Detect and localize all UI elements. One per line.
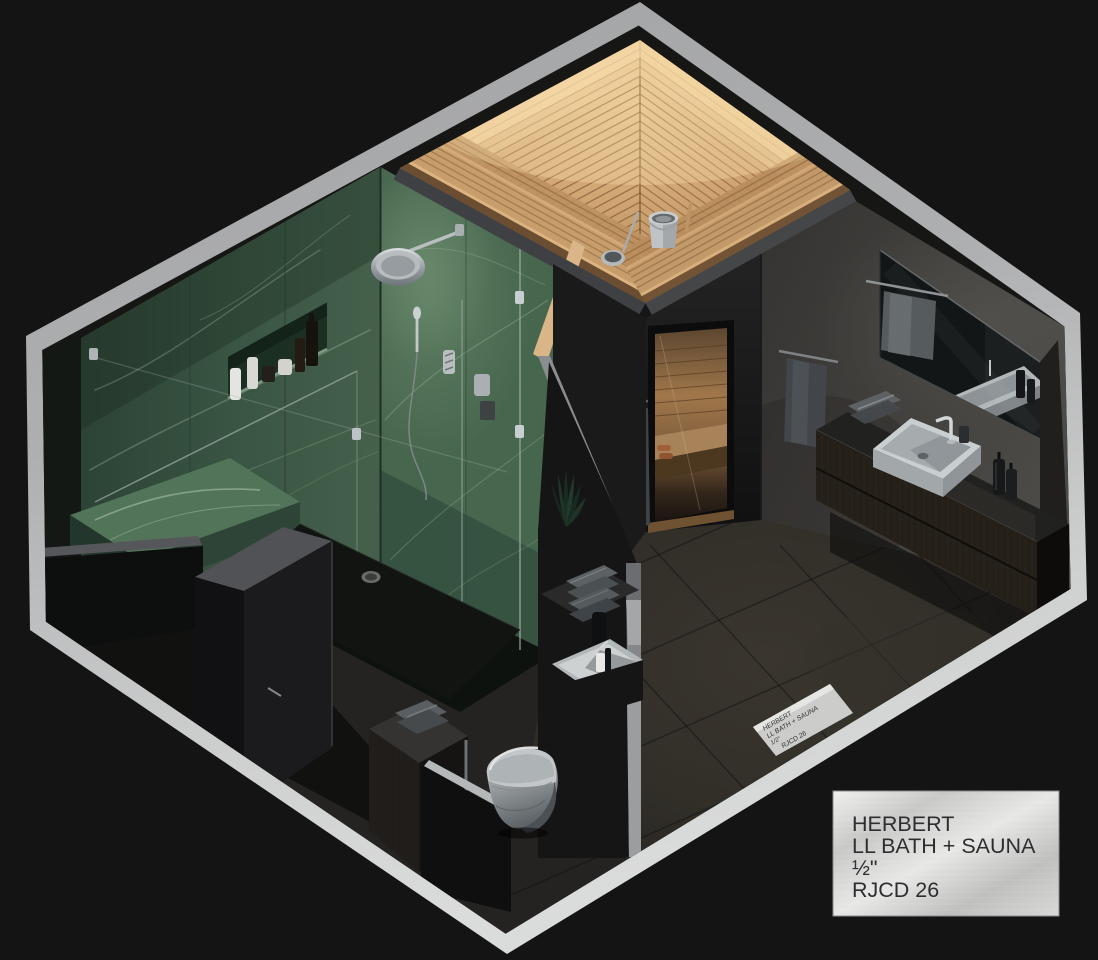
- svg-text:HERBERT: HERBERT: [852, 812, 954, 836]
- svg-text:LL BATH + SAUNA: LL BATH + SAUNA: [852, 834, 1036, 858]
- svg-text:½": ½": [852, 856, 878, 880]
- svg-text:RJCD 26: RJCD 26: [852, 878, 939, 902]
